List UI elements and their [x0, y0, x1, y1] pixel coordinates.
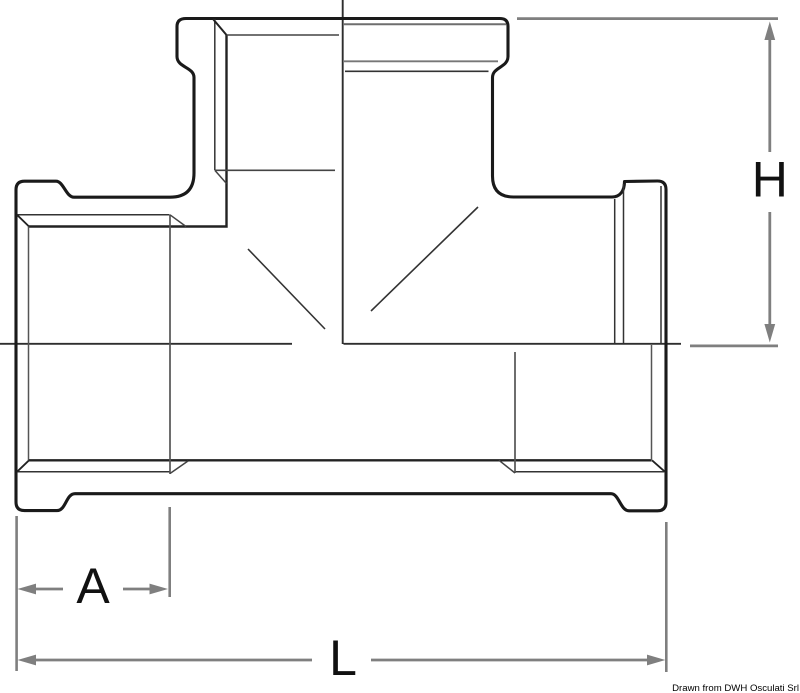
svg-text:H: H [752, 152, 788, 208]
svg-text:A: A [76, 558, 110, 614]
svg-text:L: L [329, 630, 357, 686]
svg-text:Drawn from DWH Osculati Srl: Drawn from DWH Osculati Srl [672, 683, 799, 693]
